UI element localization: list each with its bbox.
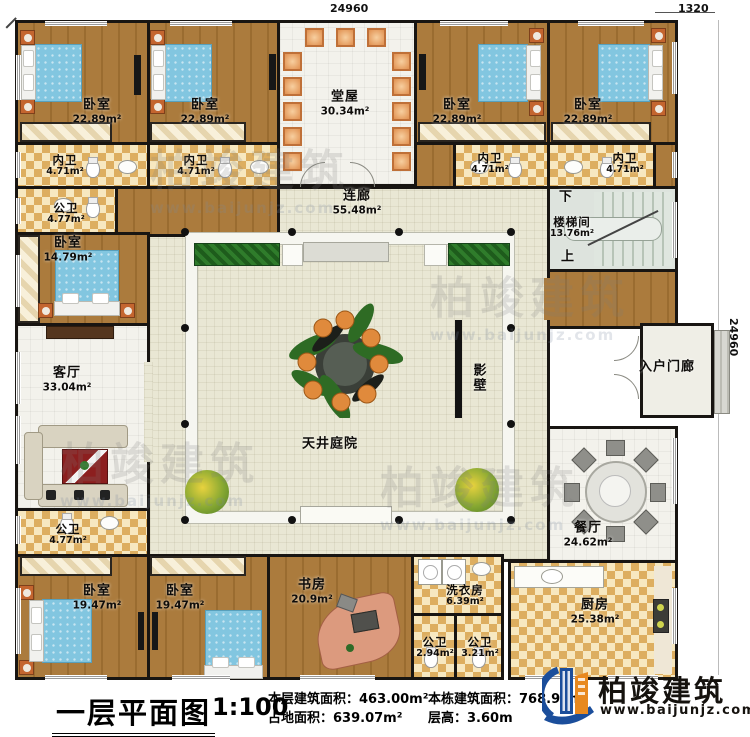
corridor-top: [115, 186, 280, 237]
dining-chair: [606, 440, 625, 456]
plant-icon: [346, 644, 354, 652]
planter-green: [194, 243, 280, 266]
planter-white: [282, 244, 303, 266]
dim-line: [655, 12, 715, 13]
pillow: [23, 50, 34, 67]
double-bed: [164, 44, 212, 102]
nightstand: [150, 30, 165, 45]
nightstand: [120, 303, 135, 318]
pillow: [652, 74, 663, 91]
sink-icon: [564, 160, 583, 174]
nightstand: [20, 99, 35, 114]
stove-icon: [653, 599, 669, 633]
dining-chair: [650, 483, 666, 502]
column-dot: [181, 228, 189, 236]
column-dot: [181, 324, 189, 332]
window: [672, 438, 677, 504]
window: [16, 198, 21, 224]
sink-icon: [250, 160, 269, 174]
courtyard-tree: [283, 298, 403, 418]
tv-icon: [134, 55, 141, 95]
tv-cabinet: [46, 326, 114, 339]
window: [16, 516, 21, 544]
room-label-bedroom-tl1: 卧室22.89m²: [73, 99, 122, 126]
toilet-icon: [86, 160, 100, 178]
window: [672, 152, 677, 178]
chair: [392, 152, 411, 171]
window: [45, 21, 107, 26]
room-label-neiwei2: 内卫4.71m²: [177, 154, 215, 178]
chair: [305, 28, 324, 47]
chair: [392, 127, 411, 146]
window: [578, 21, 644, 26]
sofa: [38, 425, 128, 448]
nightstand: [150, 99, 165, 114]
pillow: [153, 50, 164, 67]
window: [16, 416, 21, 464]
window: [440, 21, 508, 26]
toilet-icon: [508, 160, 522, 178]
column-dot: [181, 516, 189, 524]
window: [16, 152, 21, 178]
room-label-study: 书房20.9m²: [291, 579, 332, 606]
window: [672, 588, 677, 644]
room-label-gongwei4: 公卫3.21m²: [461, 636, 499, 660]
chair: [283, 77, 302, 96]
room-label-staircase: 楼梯间13.76m²: [550, 216, 594, 240]
wardrobe: [18, 235, 40, 323]
room-label-living: 客厅33.04m²: [43, 367, 92, 394]
window: [300, 675, 375, 680]
room-label-neiwei1: 内卫4.71m²: [46, 154, 84, 178]
passage: [414, 142, 456, 189]
toilet-icon: [86, 200, 100, 218]
tv-icon: [138, 612, 144, 650]
door-arc: [614, 336, 639, 361]
chair: [392, 52, 411, 71]
sink-icon: [100, 516, 119, 530]
stat-floor-height: 层高：3.60m: [428, 707, 513, 726]
chair: [392, 77, 411, 96]
room-label-porch: 入户门廊: [639, 361, 695, 376]
tv-icon: [269, 54, 276, 90]
hallway-right: [547, 269, 678, 329]
pillow: [153, 74, 164, 91]
chair: [283, 102, 302, 121]
nightstand: [529, 101, 544, 116]
room-label-tangwu: 堂屋30.34m²: [321, 91, 370, 118]
window: [16, 352, 21, 404]
dining-chair: [564, 483, 580, 502]
nightstand: [651, 28, 666, 43]
kitchen-sink: [541, 569, 563, 584]
pillow: [530, 50, 541, 67]
double-bed: [34, 44, 82, 102]
room-label-yingbi: 影壁: [470, 363, 485, 393]
room-label-kitchen: 厨房25.38m²: [571, 599, 620, 626]
window: [672, 42, 677, 94]
stat-land-area: 占地面积：639.07m²: [268, 707, 402, 726]
door-arc: [614, 374, 639, 399]
burner: [657, 621, 664, 628]
company-logo-icon: [542, 662, 596, 726]
chair: [392, 102, 411, 121]
chair: [283, 152, 302, 171]
double-bed: [478, 44, 528, 102]
nightstand: [529, 28, 544, 43]
chair: [336, 28, 355, 47]
room-label-gongwei1: 公卫4.77m²: [47, 202, 85, 226]
window: [16, 55, 21, 100]
sofa-armchair: [24, 432, 43, 500]
column-dot: [507, 324, 515, 332]
column-dot: [395, 516, 403, 524]
nightstand: [20, 30, 35, 45]
shrub: [185, 470, 229, 514]
washer-drum: [447, 565, 462, 580]
tv-icon: [152, 612, 158, 650]
nightstand: [38, 303, 53, 318]
window: [16, 588, 21, 654]
column-dot: [288, 228, 296, 236]
dim-right: 24960: [727, 318, 740, 356]
company-logo-url: www.baijunjz.com: [600, 703, 750, 718]
dim-top-right: 1320: [678, 2, 709, 15]
window: [172, 675, 230, 680]
tv-icon: [419, 54, 426, 90]
pillow: [23, 74, 34, 91]
floor-plan-page: { "dimensions": { "top": "24960", "top_r…: [0, 0, 750, 731]
wall-opening: [144, 362, 153, 462]
pillow: [238, 657, 255, 668]
pillow: [31, 607, 42, 624]
sink-icon: [472, 562, 491, 576]
room-label-bedroom-tr1: 卧室22.89m²: [433, 99, 482, 126]
planter-white: [424, 244, 447, 266]
window: [672, 202, 677, 258]
nightstand: [19, 660, 34, 675]
table-plant: [80, 461, 89, 470]
chair: [283, 127, 302, 146]
room-label-neiwei4: 内卫4.71m²: [606, 152, 644, 176]
pillow: [530, 74, 541, 91]
window: [45, 675, 107, 680]
room-label-bedroom-bl1: 卧室19.47m²: [73, 585, 122, 612]
dim-top: 24960: [330, 2, 368, 15]
pillow: [652, 50, 663, 67]
pillow: [92, 293, 109, 304]
cushion: [74, 490, 84, 500]
window: [170, 21, 232, 26]
wall-opening: [544, 278, 553, 320]
shrub: [455, 468, 499, 512]
room-label-gongwei3: 公卫2.94m²: [416, 636, 454, 660]
room-label-courtyard: 天井庭院: [302, 438, 358, 453]
stair-down-label: 下: [559, 191, 573, 206]
double-bed: [598, 44, 650, 102]
nightstand: [651, 101, 666, 116]
column-dot: [507, 420, 515, 428]
washer-icon: [442, 559, 466, 585]
wardrobe: [20, 556, 112, 576]
cushion: [100, 490, 110, 500]
cushion: [46, 490, 56, 500]
window: [16, 255, 21, 307]
washer-drum: [423, 565, 438, 580]
stone-bench-top: [303, 242, 389, 262]
room-label-bedroom-tr2: 卧室22.89m²: [564, 99, 613, 126]
toilet-icon: [218, 160, 232, 178]
sink-icon: [118, 160, 137, 174]
screen-wall: [455, 320, 462, 418]
room-label-bedroom-bl2: 卧室19.47m²: [156, 585, 205, 612]
column-dot: [288, 516, 296, 524]
room-label-dining: 餐厅24.62m²: [564, 522, 613, 549]
planter-green: [448, 243, 510, 266]
column-dot: [507, 516, 515, 524]
dining-table-center: [599, 475, 631, 507]
pillow: [31, 634, 42, 651]
stat-floor-area: 本层建筑面积：463.00m²: [268, 688, 428, 707]
chair: [367, 28, 386, 47]
column-dot: [181, 420, 189, 428]
room-label-neiwei3: 内卫4.71m²: [471, 152, 509, 176]
stair-up-label: 上: [561, 251, 575, 266]
room-label-bedroom-tl2: 卧室22.89m²: [181, 99, 230, 126]
stone-bench-bottom: [300, 506, 392, 524]
column-dot: [507, 228, 515, 236]
room-label-laundry: 洗衣房6.39m²: [446, 584, 484, 608]
washer-icon: [418, 559, 442, 585]
room-label-bedroom-left: 卧室14.79m²: [44, 237, 93, 264]
room-label-gongwei2: 公卫4.77m²: [49, 523, 87, 547]
burner: [657, 604, 664, 611]
pillow: [212, 657, 229, 668]
dining-table: [585, 461, 647, 523]
column-dot: [395, 228, 403, 236]
nightstand: [19, 585, 34, 600]
plan-title: 一层平面图: [52, 690, 215, 737]
chair: [283, 52, 302, 71]
wardrobe: [150, 556, 246, 576]
pillow: [62, 293, 79, 304]
room-label-lianlang: 连廊55.48m²: [333, 190, 382, 217]
